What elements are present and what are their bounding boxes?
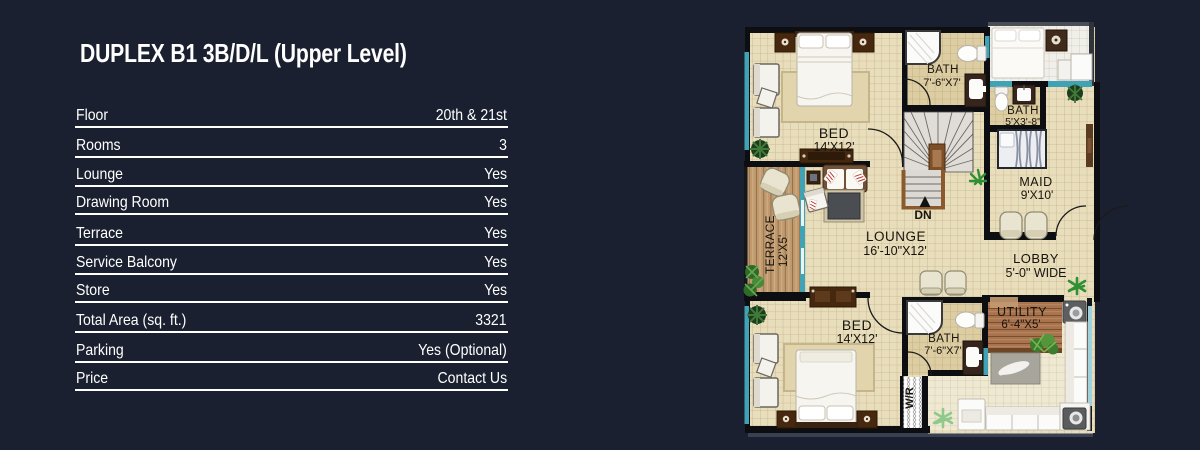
svg-text:W/R: W/R — [904, 387, 916, 408]
svg-text:LOBBY: LOBBY — [1013, 251, 1059, 266]
svg-text:BATH: BATH — [927, 64, 959, 76]
svg-text:TERRACE: TERRACE — [763, 215, 777, 274]
svg-text:MAID: MAID — [1019, 175, 1052, 189]
svg-text:9'X10': 9'X10' — [1021, 188, 1054, 202]
svg-text:BATH: BATH — [928, 333, 960, 345]
svg-text:DN: DN — [914, 208, 931, 222]
svg-text:14'X12': 14'X12' — [837, 332, 878, 346]
svg-text:14'X12': 14'X12' — [814, 140, 855, 154]
svg-text:6'-4"X5': 6'-4"X5' — [1001, 319, 1040, 331]
svg-text:16'-10"X12': 16'-10"X12' — [863, 244, 926, 258]
svg-text:5'-0" WIDE: 5'-0" WIDE — [1006, 266, 1067, 280]
svg-text:UTILITY: UTILITY — [997, 305, 1047, 319]
svg-text:7'-6"X7': 7'-6"X7' — [924, 345, 961, 357]
svg-text:LOUNGE: LOUNGE — [866, 229, 926, 244]
svg-text:5'X3'-8": 5'X3'-8" — [1005, 116, 1041, 128]
svg-text:BED: BED — [819, 125, 849, 141]
svg-text:7'-6"X7': 7'-6"X7' — [923, 77, 960, 89]
svg-text:BED: BED — [842, 317, 872, 333]
svg-text:12'X5': 12'X5' — [778, 235, 790, 267]
